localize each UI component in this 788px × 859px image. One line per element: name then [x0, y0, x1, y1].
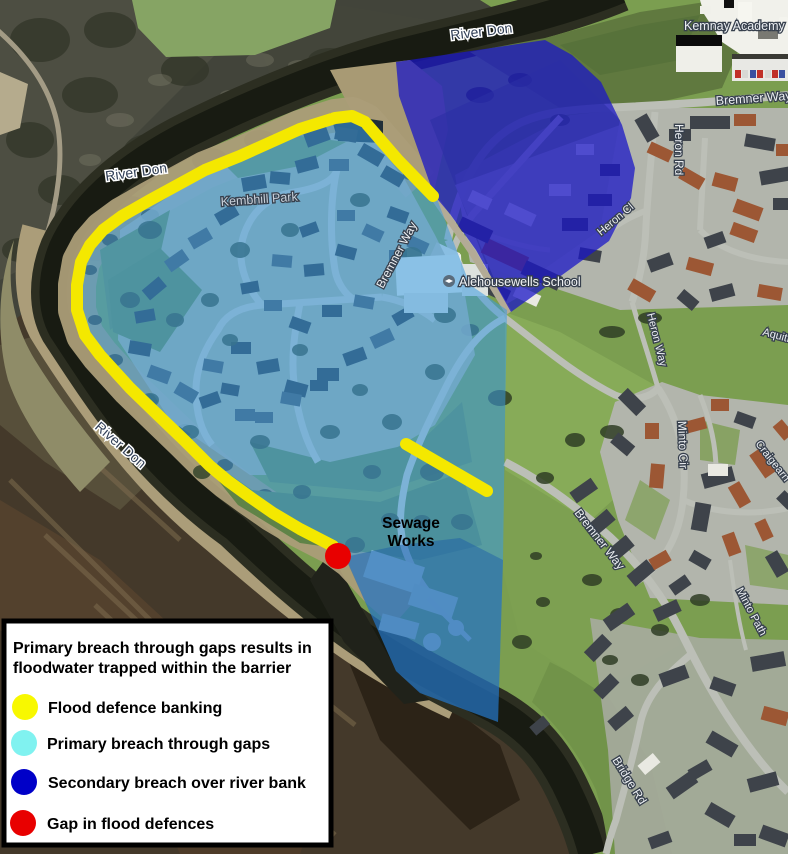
svg-text:Primary breach through gaps re: Primary breach through gaps results in — [13, 640, 312, 657]
svg-text:Works: Works — [387, 533, 434, 550]
svg-text:Kemnay Academy: Kemnay Academy — [684, 19, 785, 33]
svg-text:floodwater trapped within the: floodwater trapped within the barrier — [13, 660, 291, 677]
svg-text:Sewage: Sewage — [382, 515, 440, 532]
svg-text:Minto Cir: Minto Cir — [675, 421, 691, 469]
svg-text:Secondary breach over river ba: Secondary breach over river bank — [48, 775, 306, 792]
svg-text:Alehousewells School: Alehousewells School — [459, 275, 581, 289]
svg-text:Gap in flood defences: Gap in flood defences — [47, 816, 214, 833]
svg-text:Heron Rd: Heron Rd — [672, 124, 686, 175]
svg-text:Primary breach through gaps: Primary breach through gaps — [47, 736, 270, 753]
svg-text:Flood defence banking: Flood defence banking — [48, 700, 222, 717]
